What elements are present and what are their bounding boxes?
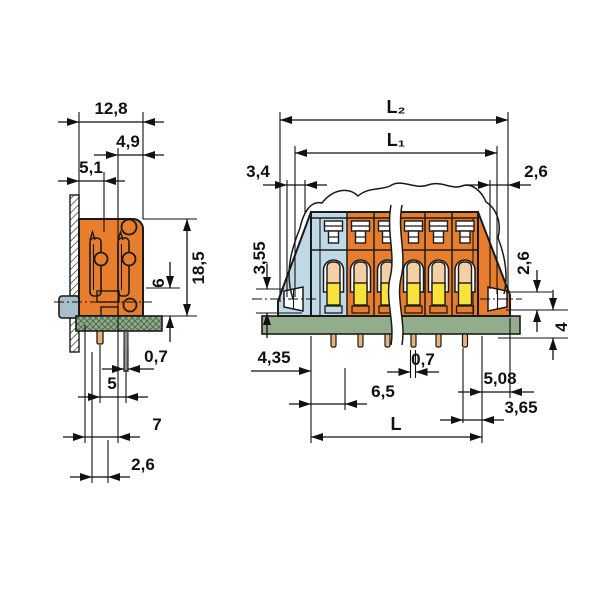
dim-label-pin-width-front: 0,7 bbox=[411, 350, 435, 369]
side-view bbox=[54, 195, 162, 371]
housing-hole bbox=[123, 253, 136, 266]
dim-label-end-offset-left: 3,4 bbox=[246, 162, 270, 181]
dim-label-pin-group-span: 6,5 bbox=[371, 382, 395, 401]
housing-hole bbox=[95, 253, 108, 266]
dim-label-height-6: 6 bbox=[149, 278, 168, 287]
dim-label-end-offset-right: 2,6 bbox=[524, 162, 548, 181]
dim-label-depth-7: 7 bbox=[152, 415, 161, 434]
solder-pin-front bbox=[385, 334, 390, 347]
solder-lug bbox=[59, 296, 79, 318]
dim-label-end-span-right: 5,08 bbox=[483, 369, 516, 388]
dim-label-total-width: 12,8 bbox=[94, 99, 127, 118]
dim-label-pitch: 5 bbox=[107, 374, 116, 393]
dimension-drawing: 12,8 4,9 5,1 18,5 6 0,7 5 7 bbox=[0, 0, 600, 600]
solder-pin-front bbox=[463, 334, 468, 347]
dimension-drawing-page: 12,8 4,9 5,1 18,5 6 0,7 5 7 bbox=[0, 0, 600, 600]
front-view bbox=[252, 183, 522, 347]
housing-hole bbox=[124, 299, 137, 312]
dim-label-upper-width: 4,9 bbox=[116, 132, 140, 151]
dim-label-lower-width: 5,1 bbox=[79, 158, 103, 177]
solder-pin-front bbox=[358, 334, 363, 347]
dim-label-L: L bbox=[391, 414, 402, 434]
pcb-cross-section bbox=[76, 316, 162, 331]
solder-pin bbox=[97, 331, 103, 344]
solder-pin-front bbox=[436, 334, 441, 347]
dim-label-height-185: 18,5 bbox=[189, 251, 208, 284]
dim-label-lug-height-left: 3,55 bbox=[250, 241, 269, 274]
solder-pin-long bbox=[124, 331, 128, 371]
dim-label-offset-26: 2,6 bbox=[131, 455, 155, 474]
dim-label-L1: L₁ bbox=[387, 130, 405, 150]
break-lines bbox=[389, 205, 403, 345]
dim-label-L2: L₂ bbox=[387, 97, 406, 117]
dim-label-pin-protrusion: 4 bbox=[552, 322, 571, 332]
solder-pin-front bbox=[411, 334, 416, 347]
mounting-panel-hatch bbox=[70, 195, 79, 296]
solder-pin-front bbox=[331, 334, 336, 347]
dim-label-lug-height-right: 2,6 bbox=[514, 251, 533, 275]
dim-label-last-pin-to-edge: 3,65 bbox=[504, 398, 537, 417]
dim-label-edge-to-pin: 4,35 bbox=[257, 348, 290, 367]
housing-hole bbox=[122, 220, 137, 235]
dim-label-pin-width-side: 0,7 bbox=[144, 347, 168, 366]
